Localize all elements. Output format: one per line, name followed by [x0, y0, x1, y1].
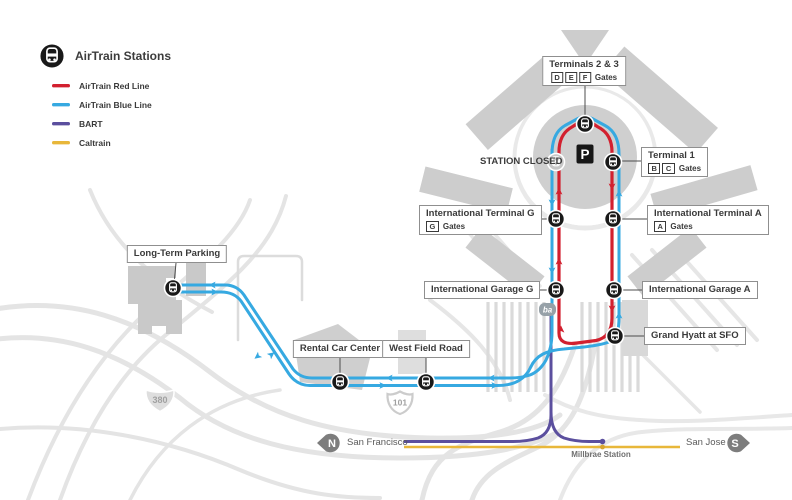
san-jose-text: San Jose: [686, 437, 726, 448]
millbrae-station-text: Millbrae Station: [556, 450, 646, 459]
station-name: Grand Hyatt at SFO: [651, 330, 739, 342]
gate-letter: F: [579, 72, 591, 83]
bart-swatch: [52, 122, 70, 126]
gate-letter: B: [648, 163, 660, 174]
label-terminals-2-3: Terminals 2 & 3 D E F Gates: [542, 56, 626, 86]
highway-380-shield: 380: [146, 390, 174, 412]
parking-symbol: P: [577, 145, 594, 164]
airtrain-station-icon: [38, 42, 66, 70]
legend-item-caltrain: Caltrain: [52, 138, 171, 148]
label-terminal-1: Terminal 1 B C Gates: [641, 147, 708, 177]
gate-letter: G: [426, 221, 439, 232]
station-name: International Garage A: [649, 284, 751, 296]
label-intl-garage-g: International Garage G: [424, 281, 540, 299]
label-rental-car-center: Rental Car Center: [293, 340, 387, 358]
station-name: International Terminal A: [654, 208, 762, 220]
station-terminals-2-3: [577, 116, 594, 133]
station-closed-text: STATION CLOSED: [480, 156, 563, 167]
station-rental-car-center: [332, 374, 349, 391]
label-grand-hyatt: Grand Hyatt at SFO: [644, 327, 746, 345]
station-name: Terminals 2 & 3: [549, 59, 619, 71]
gate-letter: C: [662, 163, 674, 174]
svg-text:380: 380: [152, 395, 167, 405]
legend-title: AirTrain Stations: [75, 49, 171, 63]
blue-line-swatch: [52, 103, 70, 107]
station-intl-terminal-g: [548, 211, 565, 228]
station-intl-garage-g: [548, 282, 565, 299]
station-name: International Garage G: [431, 284, 533, 296]
legend-item-label: BART: [79, 119, 103, 129]
north-marker-icon: N: [317, 434, 340, 453]
bart-millbrae-dot: [600, 439, 606, 445]
svg-text:S: S: [731, 438, 738, 450]
station-intl-garage-a: [606, 282, 623, 299]
svg-text:N: N: [328, 438, 336, 450]
south-marker-icon: S: [727, 434, 750, 453]
gate-letter: A: [654, 221, 666, 232]
legend-item-label: AirTrain Red Line: [79, 81, 149, 91]
svg-text:ba: ba: [543, 305, 553, 314]
label-intl-garage-a: International Garage A: [642, 281, 758, 299]
gates-row: A Gates: [654, 221, 762, 232]
gate-letter: D: [551, 72, 563, 83]
legend-item-red-line: AirTrain Red Line: [52, 81, 171, 91]
legend-item-label: AirTrain Blue Line: [79, 100, 152, 110]
sfo-airtrain-map: P ba 380 101 N S: [0, 0, 792, 500]
label-long-term-parking: Long-Term Parking: [127, 245, 227, 263]
gates-row: G Gates: [426, 221, 535, 232]
san-francisco-text: San Francisco: [347, 437, 408, 448]
station-intl-terminal-a: [605, 211, 622, 228]
gate-letter: E: [565, 72, 577, 83]
svg-text:P: P: [580, 147, 589, 162]
station-name: International Terminal G: [426, 208, 535, 220]
gates-word: Gates: [443, 222, 465, 232]
station-name: Terminal 1: [648, 150, 701, 162]
gates-row: B C Gates: [648, 163, 701, 174]
bart-logo: ba: [539, 303, 556, 316]
station-name: West Field Road: [389, 343, 463, 355]
legend-item-label: Caltrain: [79, 138, 111, 148]
station-terminal-1: [605, 154, 622, 171]
station-long-term-parking: [165, 280, 182, 297]
svg-text:101: 101: [393, 397, 407, 407]
gates-word: Gates: [670, 222, 692, 232]
station-grand-hyatt: [607, 328, 624, 345]
label-intl-terminal-g: International Terminal G G Gates: [419, 205, 542, 235]
label-west-field-road: West Field Road: [382, 340, 470, 358]
highway-101-shield: 101: [387, 392, 412, 415]
gates-word: Gates: [679, 164, 701, 174]
gates-word: Gates: [595, 73, 617, 83]
caltrain-millbrae-dot: [600, 445, 605, 450]
red-line-swatch: [52, 84, 70, 88]
legend-header: AirTrain Stations: [38, 42, 171, 70]
station-name: Rental Car Center: [300, 343, 380, 355]
label-intl-terminal-a: International Terminal A A Gates: [647, 205, 769, 235]
gates-row: D E F Gates: [549, 72, 619, 83]
caltrain-swatch: [52, 141, 70, 145]
station-west-field-road: [418, 374, 435, 391]
legend-item-bart: BART: [52, 119, 171, 129]
station-name: Long-Term Parking: [134, 248, 220, 260]
legend: AirTrain Stations AirTrain Red Line AirT…: [38, 42, 171, 157]
legend-item-blue-line: AirTrain Blue Line: [52, 100, 171, 110]
